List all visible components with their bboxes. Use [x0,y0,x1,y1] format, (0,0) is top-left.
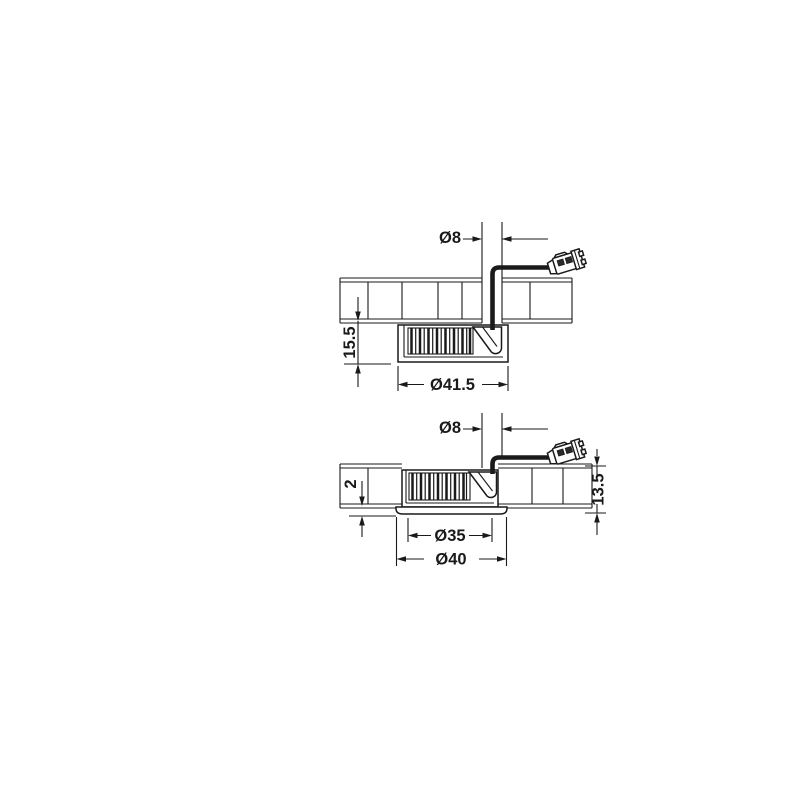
dim-label-flange: Ø40 [435,551,466,569]
dim-label-height-top: 15.5 [341,326,359,358]
lamp-housing-bottom [396,470,507,514]
view-flush-mounted: Ø8 2 13.5 Ø35 [340,413,608,569]
power-cable-top [493,268,552,331]
dim-diameter-top: Ø41.5 [398,366,508,394]
dim-cable-hole-bottom: Ø8 [439,419,548,437]
trim-flange [396,507,507,514]
plug-connector-top [546,247,587,277]
plug-connector-bottom [546,437,587,467]
dim-label-cutout: Ø35 [434,527,465,545]
dim-label-hole-bottom: Ø8 [439,419,461,437]
drawing-canvas: Ø8 15.5 Ø41.5 [0,0,800,800]
power-cable-bottom [493,458,552,475]
dim-cutout-bottom: Ø35 [408,518,492,545]
view-surface-mounted: Ø8 15.5 Ø41.5 [340,222,587,394]
panel-cross-section-top [340,278,572,323]
dim-height-top: 15.5 [341,297,391,387]
dim-label-hole-top: Ø8 [439,229,461,247]
dim-depth-bottom: 13.5 [585,449,608,535]
dim-label-protrusion: 2 [342,479,360,488]
lamp-housing-top [398,325,508,362]
dim-label-diameter-top: Ø41.5 [430,376,475,394]
dim-cable-hole-top: Ø8 [439,229,548,247]
dim-label-depth: 13.5 [590,473,608,505]
technical-drawing: Ø8 15.5 Ø41.5 [0,0,800,800]
